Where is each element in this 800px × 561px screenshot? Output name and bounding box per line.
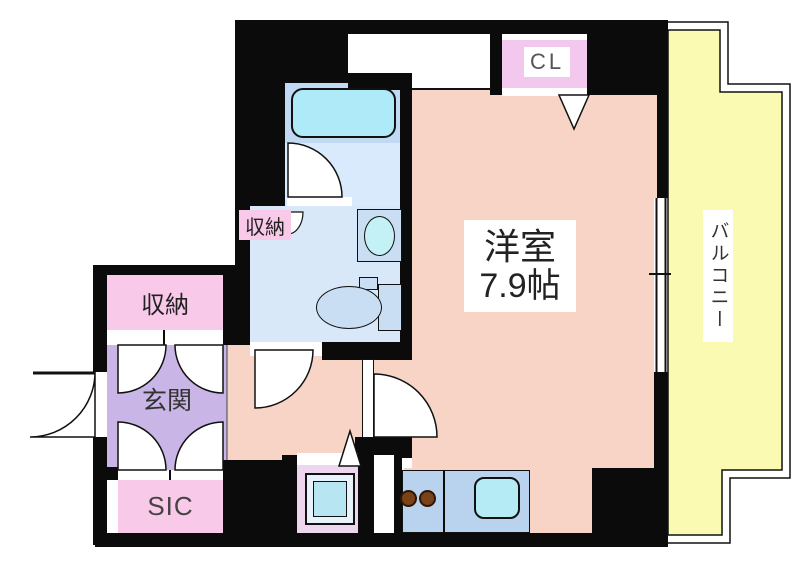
wall [250,34,285,206]
main-room-label: 洋室 7.9帖 [464,220,576,312]
stove-burner-icon [400,490,417,507]
balcony-label: バルコニー [703,210,733,342]
wall [657,95,668,200]
wall [490,34,502,95]
sic-label: SIC [118,480,223,533]
wall [587,20,668,95]
window-glass [654,198,668,372]
kitchen-divider [443,470,445,533]
washbasin-bowl-icon [364,216,395,256]
wall [107,265,223,275]
stove-burner-icon [419,490,436,507]
washing-machine-drum-icon [313,481,347,517]
main-room-floor [412,90,657,200]
main-room-name: 洋室 [484,226,556,267]
wall [322,342,412,360]
storage-label: 収納 [107,275,223,330]
entrance-label: 玄関 [117,385,217,413]
room-door-panel [362,359,374,438]
hallway-floor [227,345,362,460]
door-track-divider [169,470,171,480]
toilet-bowl-icon [316,286,382,329]
main-room-floor [412,370,654,468]
wall [285,34,348,83]
door-track-divider [163,330,165,345]
wall [223,265,250,345]
wall [107,467,118,480]
main-room-size: 7.9帖 [479,267,560,306]
bathtub-icon [291,88,396,138]
storage-door-track [107,330,223,345]
bath-threshold [287,197,352,206]
cl-label: CL [524,47,570,77]
washroom-door-opening [250,342,322,356]
wall [592,468,658,533]
wall [358,455,374,533]
washer-door-track [297,453,358,465]
washroom-storage-label: 収納 [239,210,291,240]
kitchen-sink-icon [474,477,520,519]
wall [223,460,297,533]
wall [95,533,668,547]
entrance-door-opening [93,372,107,437]
fridge-space [374,455,394,533]
floor-plan: 洋室 7.9帖 バルコニー CL 玄関 収納 SIC 収納 [0,0,800,561]
room-doorway-floor [374,358,412,437]
cl-door-track [502,88,587,96]
entrance-door-swing [30,372,95,437]
